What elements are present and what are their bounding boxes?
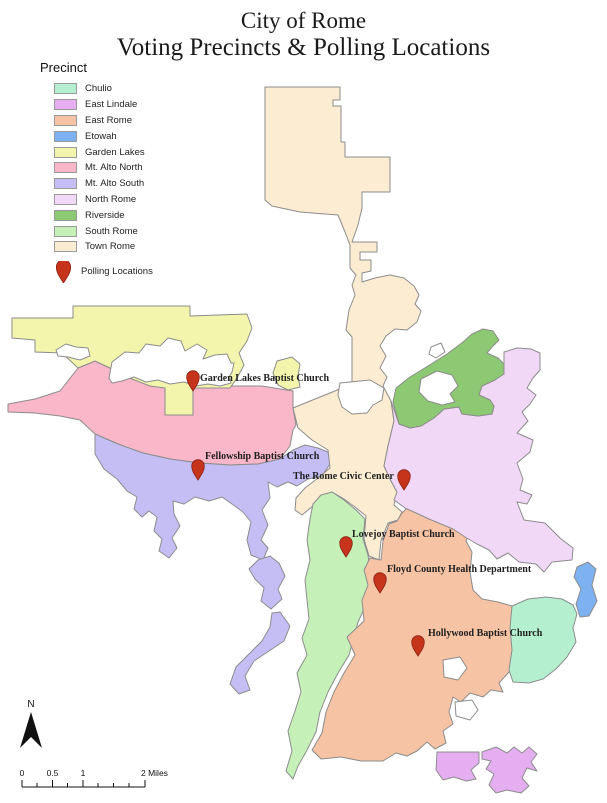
legend-item: Mt. Alto North [40,160,153,176]
precinct-east-lindale-region [436,752,479,781]
legend-item-label: East Lindale [85,99,137,110]
legend-item-label: Mt. Alto North [85,162,143,173]
legend-item: Garden Lakes [40,144,153,160]
polling-location-label: Lovejoy Baptist Church [352,529,455,540]
legend-swatch [54,147,77,158]
river-hole [429,343,445,358]
legend-item-label: Etowah [85,131,117,142]
scale-bar-labels: 0 0.5 1 2 Miles [20,768,168,778]
compass-label: N [27,699,34,710]
legend-item-label: Town Rome [85,241,135,252]
legend-polling-label: Polling Locations [81,266,153,277]
river-hole [455,700,478,720]
legend-item-label: South Rome [85,226,138,237]
legend-item-label: Garden Lakes [85,147,145,158]
legend-swatch [54,226,77,237]
legend-item-label: East Rome [85,115,132,126]
legend-item: Chulio [40,81,153,97]
legend-swatch [54,99,77,110]
map-page: City of Rome Voting Precincts & Polling … [0,0,607,803]
scale-label: 1 [81,768,86,778]
polling-location-label: Fellowship Baptist Church [205,451,320,462]
precinct-mt-alto-south-fragment [230,612,290,694]
scale-bar [22,780,145,787]
legend-polling-row: Polling Locations [40,261,153,283]
legend-swatch [54,162,77,173]
legend-items: ChulioEast LindaleEast RomeEtowahGarden … [40,81,153,255]
legend-item: Mt. Alto South [40,176,153,192]
legend-swatch [54,178,77,189]
legend-item: South Rome [40,223,153,239]
precinct-chulio-region [509,597,577,683]
legend-item: Riverside [40,207,153,223]
scale-label: 0 [20,768,25,778]
legend-item: North Rome [40,192,153,208]
legend-swatch [54,210,77,221]
legend-swatch [54,115,77,126]
polling-pin-icon [56,261,71,283]
legend-swatch [54,131,77,142]
legend: Precinct ChulioEast LindaleEast RomeEtow… [40,60,153,283]
polling-location-label: Hollywood Baptist Church [428,628,543,639]
polling-location-label: The Rome Civic Center [293,471,394,482]
precinct-east-lindale-region [482,747,537,793]
legend-item-label: Riverside [85,210,125,221]
legend-title: Precinct [40,60,153,75]
legend-item: East Lindale [40,97,153,113]
legend-item-label: North Rome [85,194,136,205]
scale-label: 0.5 [47,768,59,778]
polling-location-label: Floyd County Health Department [387,564,532,575]
scale-label: 2 Miles [141,768,168,778]
legend-swatch [54,83,77,94]
legend-item: Etowah [40,128,153,144]
legend-item: East Rome [40,113,153,129]
precinct-etowah-region [574,562,597,617]
legend-swatch [54,241,77,252]
north-arrow: N [20,699,42,748]
legend-item-label: Chulio [85,83,112,94]
legend-swatch [54,194,77,205]
legend-item: Town Rome [40,239,153,255]
polling-location-label: Garden Lakes Baptist Church [200,373,329,384]
legend-item-label: Mt. Alto South [85,178,144,189]
north-arrow-icon [20,712,42,748]
precinct-mt-alto-south-fragment [249,556,285,609]
